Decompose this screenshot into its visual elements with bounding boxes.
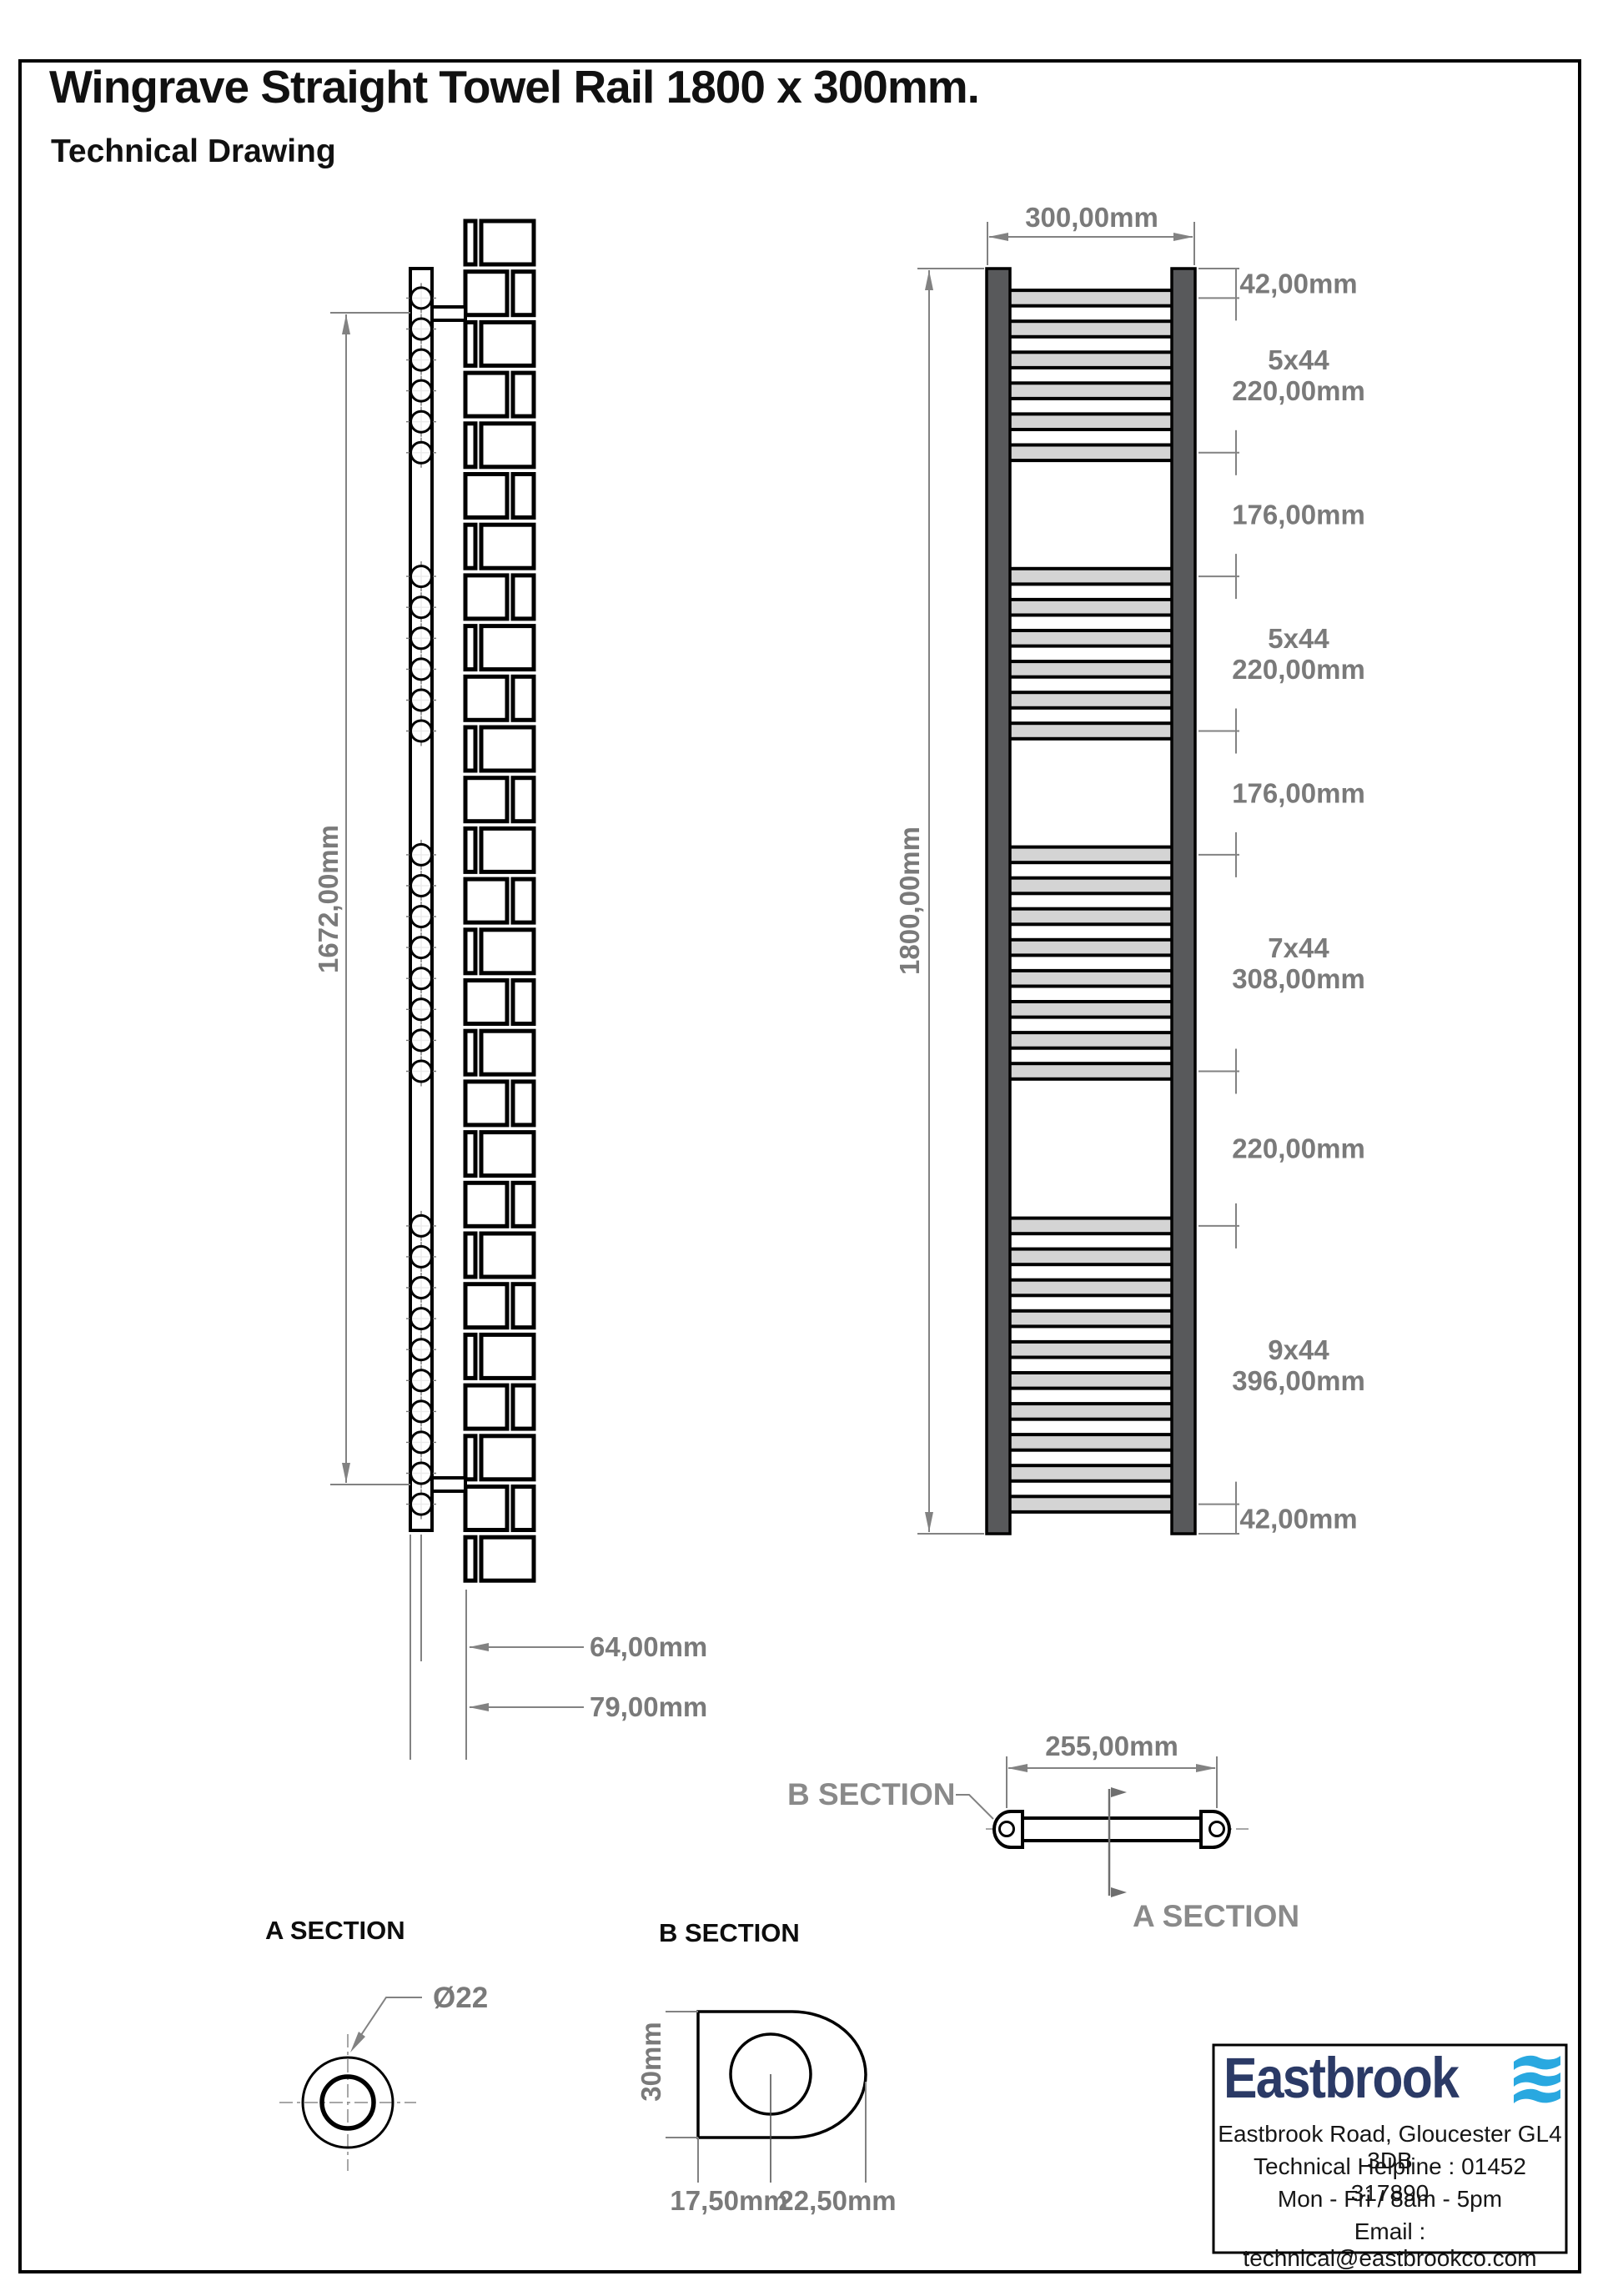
screw-icon: [411, 1061, 432, 1082]
page-subtitle: Technical Drawing: [51, 133, 336, 170]
screw-icon: [411, 1309, 432, 1329]
towel-rail-tube: [1008, 1434, 1173, 1450]
brick: [465, 322, 475, 365]
segment-label: 7x44 308,00mm: [1224, 932, 1373, 994]
brick: [513, 1183, 534, 1226]
side-height-dimension: 1672,00mm: [313, 825, 344, 973]
arrow-left-icon: [469, 1643, 489, 1651]
brick: [465, 828, 475, 872]
section-arrow-icon: [1111, 1787, 1127, 1797]
brick: [481, 525, 534, 568]
brick: [513, 475, 534, 518]
brick: [481, 1537, 534, 1580]
b-section-leader: [956, 1795, 993, 1819]
brick: [513, 1082, 534, 1125]
screw-icon: [411, 566, 432, 587]
towel-rail-tube: [1008, 569, 1173, 585]
screw-icon: [411, 690, 432, 711]
leader-arrow-icon: [350, 2032, 365, 2052]
towel-rail-tube: [1008, 1280, 1173, 1296]
towel-rail-tube: [1008, 723, 1173, 739]
brick: [513, 879, 534, 922]
screw-icon: [411, 1246, 432, 1267]
brick: [465, 879, 507, 922]
screw-icon: [411, 597, 432, 618]
towel-rail-tube: [1008, 600, 1173, 615]
brick: [465, 1284, 507, 1328]
brick: [465, 1487, 507, 1530]
screw-icon: [411, 1215, 432, 1236]
towel-rail-tube: [1008, 631, 1173, 646]
screw-icon: [411, 968, 432, 989]
brick: [465, 626, 475, 670]
towel-rail-tube: [1008, 321, 1173, 337]
brick: [465, 676, 507, 720]
arrow-down-icon: [925, 1512, 933, 1532]
brick: [481, 1334, 534, 1378]
a-section-title: A SECTION: [265, 1916, 405, 1946]
segment-label: 176,00mm: [1224, 778, 1373, 809]
brick: [481, 1233, 534, 1277]
brick: [465, 1183, 507, 1226]
brick: [465, 1233, 475, 1277]
brick: [465, 1133, 475, 1176]
brick: [481, 1436, 534, 1480]
collector-tube-right: [1172, 269, 1195, 1534]
screw-icon: [411, 319, 432, 339]
brick: [481, 930, 534, 973]
section-arrow-icon: [1111, 1887, 1127, 1897]
arrow-right-icon: [1173, 233, 1193, 241]
towel-rail-tube: [1008, 971, 1173, 987]
plan-bracket-hole-right: [1210, 1822, 1224, 1836]
towel-rail-tube: [1008, 1465, 1173, 1481]
brick-wall: [465, 221, 534, 1580]
footer-hours: Mon - Fri / 8am - 5pm: [1213, 2186, 1566, 2213]
page-title: Wingrave Straight Towel Rail 1800 x 300m…: [49, 60, 979, 113]
technical-drawing-page: Wingrave Straight Towel Rail 1800 x 300m…: [0, 0, 1623, 2296]
plan-width-dimension: 255,00mm: [1045, 1731, 1178, 1762]
brick: [465, 981, 507, 1024]
towel-rail-tube: [1008, 445, 1173, 461]
screw-icon: [411, 999, 432, 1020]
screw-icon: [411, 1432, 432, 1453]
towel-rail-tube: [1008, 1404, 1173, 1419]
segment-label: 220,00mm: [1224, 1133, 1373, 1164]
side-center-dimension: 64,00mm: [590, 1631, 707, 1663]
a-section-diameter: Ø22: [433, 1982, 488, 2015]
arrow-left-icon: [988, 233, 1008, 241]
brick: [465, 1436, 475, 1480]
towel-rail-tube: [1008, 1032, 1173, 1048]
brick: [465, 778, 507, 821]
brick: [465, 930, 475, 973]
screw-icon: [411, 411, 432, 432]
towel-rail-tube: [1008, 661, 1173, 677]
segment-label: 176,00mm: [1224, 500, 1373, 530]
towel-rail-tube: [1008, 414, 1173, 430]
cross-tubes: [1008, 290, 1173, 1512]
towel-rail-tube: [1008, 692, 1173, 708]
screw-icon: [411, 1494, 432, 1515]
towel-rail-tube: [1008, 909, 1173, 925]
brick: [465, 1082, 507, 1125]
towel-rail-tube: [1008, 1249, 1173, 1265]
b-section-offset-right: 22,50mm: [778, 2185, 896, 2217]
towel-rail-tube: [1008, 847, 1173, 863]
screw-icon: [411, 937, 432, 958]
b-section-title: B SECTION: [659, 1918, 800, 1948]
brick: [513, 676, 534, 720]
towel-rail-tube: [1008, 1002, 1173, 1017]
brick: [513, 778, 534, 821]
screw-icon: [411, 628, 432, 649]
drawing-layer: [0, 0, 1623, 2296]
screw-icon: [411, 1030, 432, 1051]
screw-icon: [411, 380, 432, 401]
screw-icon: [411, 721, 432, 741]
brick: [465, 373, 507, 416]
towel-rail-tube: [1008, 1311, 1173, 1327]
towel-rail-tube: [1008, 1496, 1173, 1512]
brick: [481, 626, 534, 670]
brick: [481, 424, 534, 467]
screw-icon: [411, 876, 432, 897]
brick: [513, 1385, 534, 1429]
brick: [465, 1537, 475, 1580]
brick: [513, 373, 534, 416]
towel-rail-tube: [1008, 1218, 1173, 1234]
brick: [465, 575, 507, 619]
b-section-height: 30mm: [636, 2022, 667, 2101]
footer-email: Email : technical@eastbrookco.com: [1213, 2218, 1566, 2272]
towel-rail-tube: [1008, 290, 1173, 306]
brick: [481, 727, 534, 771]
arrow-right-icon: [1196, 1764, 1216, 1772]
towel-rail-tube: [1008, 878, 1173, 894]
arrow-left-icon: [469, 1703, 489, 1711]
b-section-offset-left: 17,50mm: [670, 2185, 787, 2217]
segment-label: 42,00mm: [1224, 1504, 1373, 1535]
brick: [465, 1334, 475, 1378]
towel-rail-tube: [1008, 1373, 1173, 1389]
screw-icon: [411, 1278, 432, 1299]
screw-icon: [411, 349, 432, 370]
arrow-up-icon: [342, 314, 350, 334]
arrow-left-icon: [1007, 1764, 1028, 1772]
plan-bracket-hole-left: [1000, 1822, 1014, 1836]
wall-bracket-bottom: [432, 1478, 465, 1491]
brick: [481, 1031, 534, 1074]
plan-a-section-label: A SECTION: [1133, 1899, 1299, 1934]
collector-tube-left: [987, 269, 1010, 1534]
segment-label: 5x44 220,00mm: [1224, 344, 1373, 406]
screw-icon: [411, 1370, 432, 1391]
screw-icon: [411, 1401, 432, 1422]
towel-rail-tube: [1008, 1342, 1173, 1358]
screw-icon: [411, 1463, 432, 1484]
screw-icon: [411, 659, 432, 680]
arrow-down-icon: [342, 1463, 350, 1483]
plan-top-tube: [1023, 1818, 1201, 1841]
brick: [481, 1133, 534, 1176]
brick: [465, 525, 475, 568]
towel-rail-tube: [1008, 352, 1173, 368]
screw-icon: [411, 288, 432, 309]
brick: [465, 221, 475, 264]
segment-label: 5x44 220,00mm: [1224, 623, 1373, 685]
towel-rail-tube: [1008, 940, 1173, 956]
brick: [481, 828, 534, 872]
segment-label: 42,00mm: [1224, 269, 1373, 299]
brick: [465, 1031, 475, 1074]
front-height-dimension: 1800,00mm: [894, 826, 926, 975]
towel-rail-tube: [1008, 383, 1173, 399]
brick: [465, 1385, 507, 1429]
brand-logo: Eastbrook: [1224, 2045, 1458, 2111]
brick: [465, 727, 475, 771]
brick: [465, 475, 507, 518]
brick: [465, 272, 507, 315]
towel-rail-tube: [1008, 1063, 1173, 1079]
plan-b-section-label: B SECTION: [787, 1777, 955, 1812]
screw-icon: [411, 442, 432, 463]
brick: [513, 1487, 534, 1530]
side-depth-dimension: 79,00mm: [590, 1691, 707, 1723]
brick: [465, 424, 475, 467]
segment-label: 9x44 396,00mm: [1224, 1334, 1373, 1396]
front-width-dimension: 300,00mm: [1025, 202, 1158, 234]
screw-icon: [411, 1339, 432, 1360]
brick: [513, 981, 534, 1024]
brick: [513, 272, 534, 315]
screw-icon: [411, 907, 432, 927]
arrow-up-icon: [925, 270, 933, 290]
screw-icon: [411, 844, 432, 865]
wall-bracket-top: [432, 307, 465, 320]
brick: [513, 575, 534, 619]
eastbrook-waves-icon: [1514, 2056, 1560, 2103]
diameter-leader: [354, 1997, 422, 2045]
brick: [481, 221, 534, 264]
brick: [481, 322, 534, 365]
brick: [513, 1284, 534, 1328]
